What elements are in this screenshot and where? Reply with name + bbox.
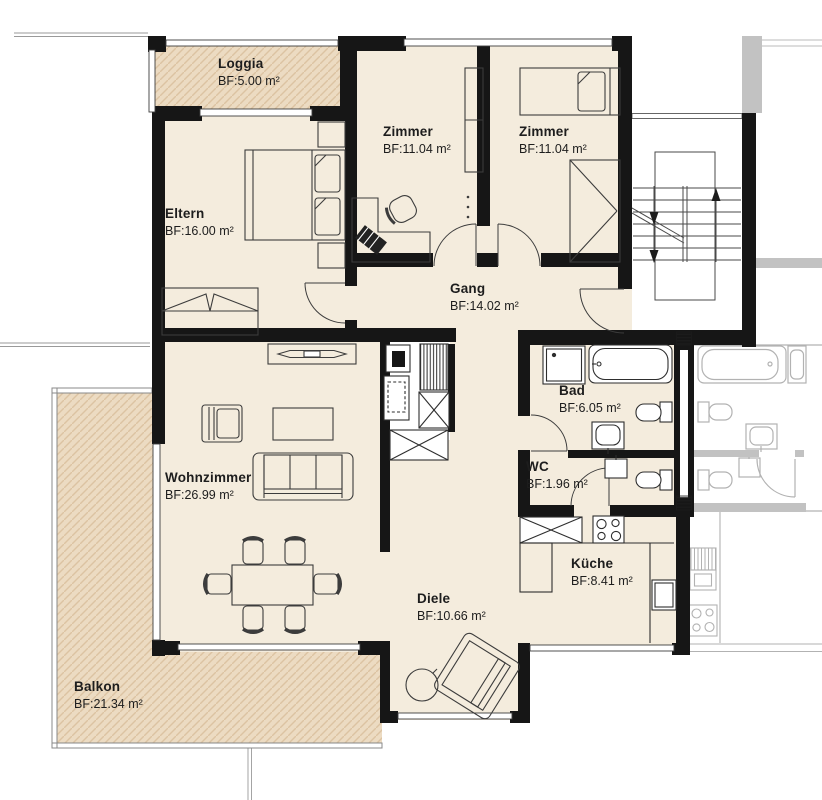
loggia-railing-window <box>166 40 338 46</box>
kueche-window <box>530 645 674 651</box>
wohnzimmer-south-window <box>178 644 360 650</box>
bad-toilet <box>636 402 672 422</box>
wc-washbasin <box>605 455 627 478</box>
loggia-area <box>155 44 345 116</box>
shaft-box-1 <box>419 392 449 428</box>
kitchen-stove <box>593 516 624 543</box>
eltern-window <box>200 109 312 116</box>
shower <box>543 346 585 384</box>
wc-toilet <box>636 470 672 490</box>
diele-door-window <box>398 713 512 719</box>
kitchen-oven <box>652 580 676 610</box>
neighbor-wall <box>742 36 762 113</box>
wohnzimmer-west-window <box>153 444 160 640</box>
ventilation-shaft <box>420 344 448 390</box>
bathtub <box>589 345 672 383</box>
floor-plan: Loggia BF:5.00 m² Zimmer BF:11.04 m² Zim… <box>0 0 822 800</box>
zimmer-windows <box>404 39 612 46</box>
bad-washbasin <box>592 422 624 454</box>
kitchen-tall-unit <box>520 517 582 543</box>
floor-plan-drawing <box>0 0 822 800</box>
shaft-box-2 <box>390 430 448 460</box>
neighbor-fridge <box>690 548 716 570</box>
